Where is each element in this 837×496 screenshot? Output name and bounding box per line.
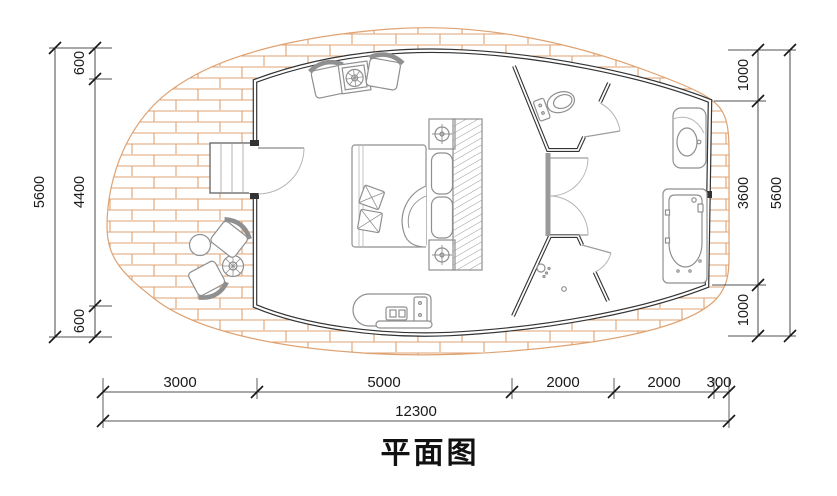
entry-step — [210, 143, 255, 193]
dim-left-600-top: 600 — [72, 51, 88, 75]
dim-bottom-300: 300 — [706, 374, 731, 391]
dim-left-4400: 4400 — [72, 176, 88, 208]
floor-plan-drawing: 5600 600 4400 600 1000 3600 1000 5600 30… — [0, 0, 837, 496]
nightstand-lamp — [429, 119, 455, 149]
dim-left-total: 5600 — [32, 176, 48, 208]
wardrobe — [453, 119, 482, 270]
bathtub — [663, 189, 707, 283]
dim-bottom-2000-a: 2000 — [546, 374, 579, 391]
bed — [352, 145, 426, 247]
side-table — [338, 61, 371, 94]
drawing-title: 平面图 — [381, 437, 480, 470]
plant-table — [223, 256, 244, 277]
dim-bottom-5000: 5000 — [367, 374, 400, 391]
dim-right-1000-top: 1000 — [736, 59, 752, 91]
headboard-cushion — [432, 197, 453, 238]
dim-bottom-total: 12300 — [395, 403, 437, 420]
washbasin — [673, 108, 706, 168]
dim-right-1000-bottom: 1000 — [736, 294, 752, 326]
nightstand-lamp — [429, 240, 455, 270]
headboard-cushion — [432, 153, 453, 194]
dim-bottom-3000: 3000 — [163, 374, 196, 391]
dim-right-3600: 3600 — [736, 177, 752, 209]
outdoor-round-table — [190, 235, 211, 256]
dim-right-total: 5600 — [769, 177, 785, 209]
dim-bottom-2000-b: 2000 — [647, 374, 680, 391]
kitchenette-counter — [353, 294, 432, 328]
dim-left-600-bottom: 600 — [72, 309, 88, 333]
pillow — [357, 209, 382, 233]
